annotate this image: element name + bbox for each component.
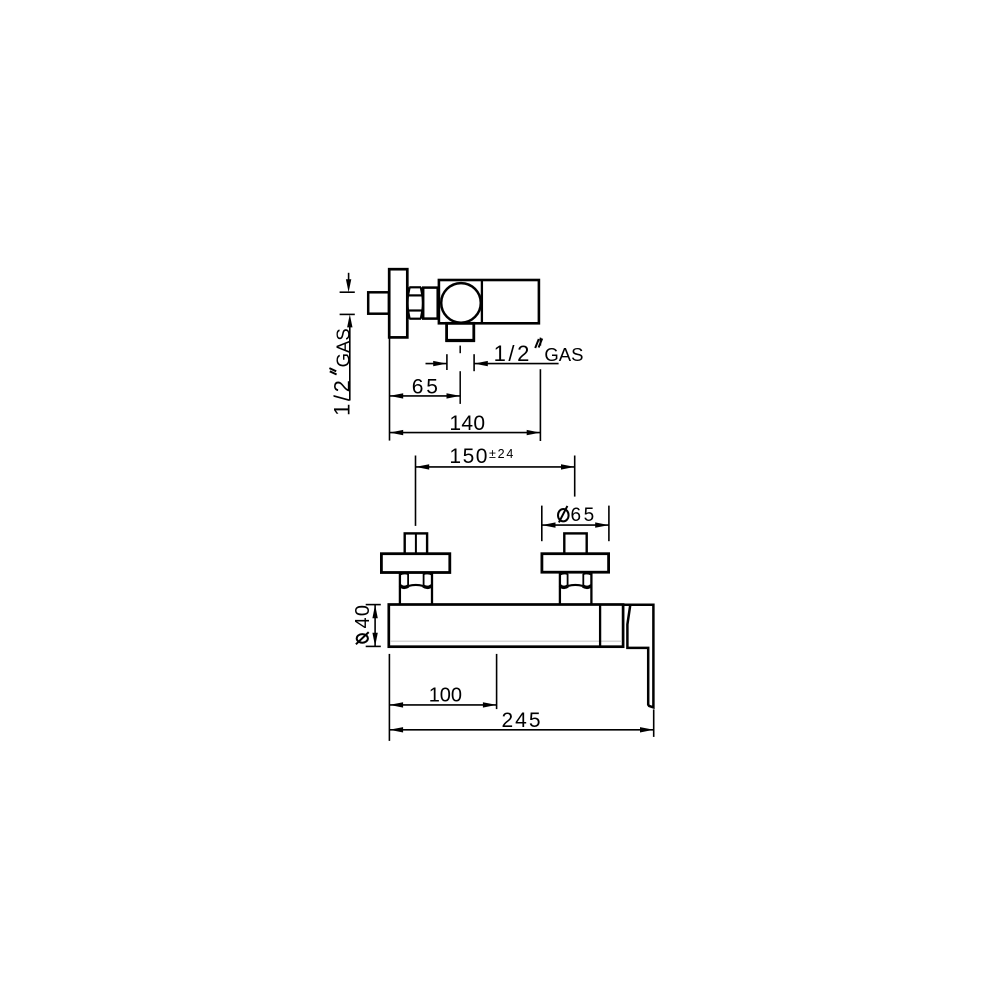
svg-text:GAS: GAS — [544, 344, 583, 365]
svg-text:GAS: GAS — [333, 328, 354, 367]
svg-text:150: 150 — [449, 445, 489, 468]
svg-text:65: 65 — [571, 505, 597, 526]
svg-text:65: 65 — [412, 376, 441, 399]
svg-text:1/2: 1/2 — [330, 378, 355, 416]
svg-text:140: 140 — [449, 412, 485, 435]
svg-text:1/2: 1/2 — [494, 341, 532, 366]
svg-text:245: 245 — [502, 709, 543, 732]
svg-text:±24: ±24 — [489, 447, 515, 461]
svg-text:100: 100 — [429, 684, 462, 706]
svg-text:40: 40 — [352, 604, 374, 629]
